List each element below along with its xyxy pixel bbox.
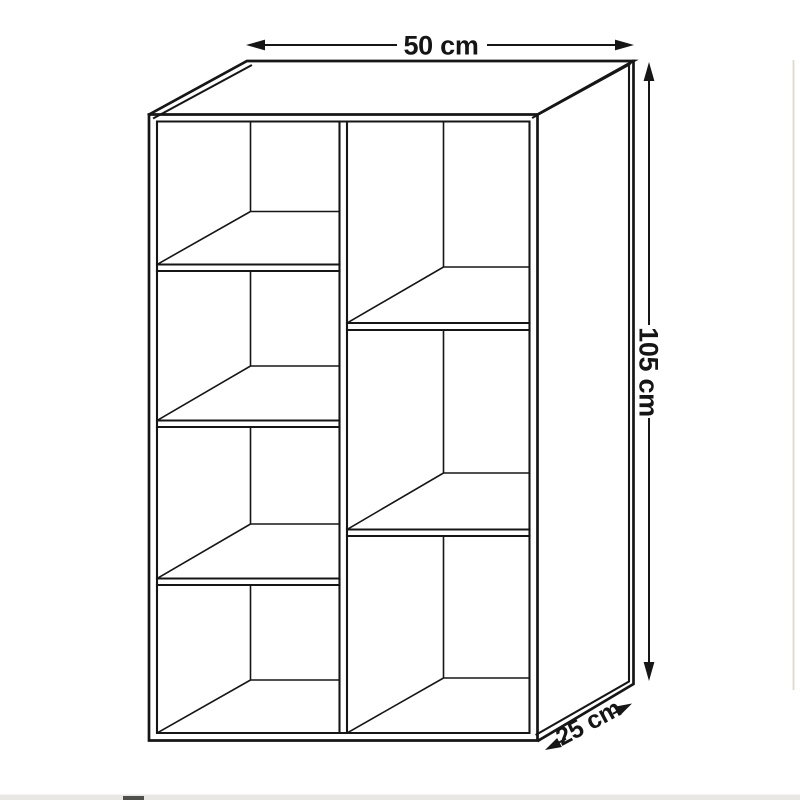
drawing-canvas: 50 cm 105 cm 25 cm: [0, 0, 800, 800]
scan-artifact-mark: [123, 796, 144, 800]
vertical-divider: [340, 122, 348, 734]
right-compartment-depth-lines: [347, 122, 530, 734]
arrow-up-icon: [644, 62, 655, 81]
right-shelf-2: [347, 530, 530, 537]
height-dimension: 105 cm: [634, 62, 664, 681]
depth-dimension: 25 cm: [545, 694, 632, 751]
depth-dimension-label: 25 cm: [551, 694, 625, 751]
left-shelf-1: [157, 265, 340, 272]
top-face-left-edge-inner: [154, 66, 251, 119]
right-panel-inner-edge: [537, 65, 630, 735]
cabinet-outline: [149, 61, 634, 741]
scan-artifact-strip: [0, 795, 800, 800]
left-column-shelves: [157, 265, 340, 586]
arrow-right-icon: [615, 40, 634, 51]
right-panel-outline: [539, 61, 634, 741]
top-face-outline: [149, 61, 634, 115]
right-column-shelves: [347, 323, 530, 536]
arrow-left-icon: [246, 40, 265, 51]
left-shelf-3: [157, 579, 340, 586]
top-face-right-edge-inner: [533, 65, 630, 118]
width-dimension-label: 50 cm: [403, 31, 478, 61]
arrow-down-icon: [644, 662, 655, 681]
left-shelf-2: [157, 421, 340, 428]
bookcase-dimension-diagram: 50 cm 105 cm 25 cm: [0, 0, 800, 800]
height-dimension-label: 105 cm: [634, 327, 664, 417]
width-dimension: 50 cm: [246, 31, 634, 61]
right-shelf-1: [347, 323, 530, 330]
scan-artifacts: [0, 60, 800, 800]
